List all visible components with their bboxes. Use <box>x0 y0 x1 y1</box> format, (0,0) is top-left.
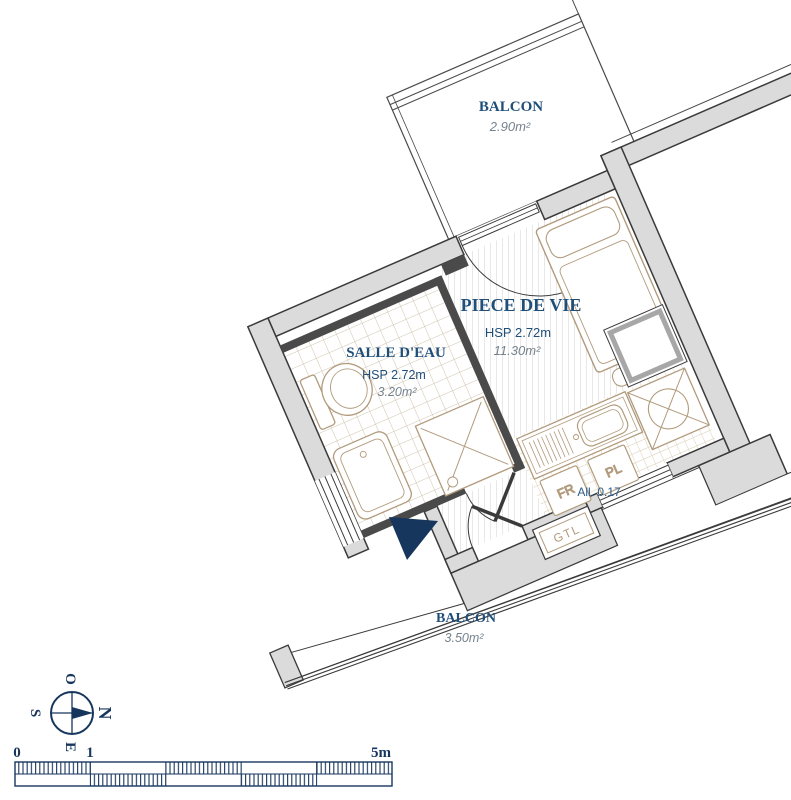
balcon-bottom-name: BALCON <box>436 611 496 626</box>
balcon-top-area: 2.90m² <box>489 119 531 134</box>
balcon-top-name: BALCON <box>479 99 543 115</box>
compass-east-label: E <box>62 742 78 752</box>
balcon-bottom-area: 3.50m² <box>445 631 485 645</box>
scale-zero-label: 0 <box>13 745 21 761</box>
scale-five-label: 5m <box>371 745 392 761</box>
neighbor-wall-band <box>601 42 791 174</box>
site-boundary-line <box>473 0 579 14</box>
salle-deau-name: SALLE D'EAU <box>346 345 446 361</box>
compass-west-label: O <box>62 673 78 685</box>
piece-de-vie-area: 11.30m² <box>494 343 541 358</box>
scale-one-label: 1 <box>86 745 94 761</box>
salle-deau-hsp: HSP 2.72m <box>362 368 426 382</box>
window-sill-label: All. 0.17 <box>577 485 621 499</box>
floor-plan-svg: FR PL GTL BALCON 2.90m² PIECE DE VIE HSP… <box>0 0 791 800</box>
compass-icon: N E S O <box>27 673 115 752</box>
compass-south-label: S <box>27 709 43 717</box>
compass-north-label: N <box>95 707 115 720</box>
salle-deau-area: 3.20m² <box>378 385 418 399</box>
entry-arrow-icon <box>389 517 438 560</box>
piece-de-vie-name: PIECE DE VIE <box>461 295 582 315</box>
compass-needle <box>72 707 93 719</box>
floor-plan-page: FR PL GTL BALCON 2.90m² PIECE DE VIE HSP… <box>0 0 791 800</box>
piece-de-vie-hsp: HSP 2.72m <box>485 325 551 340</box>
